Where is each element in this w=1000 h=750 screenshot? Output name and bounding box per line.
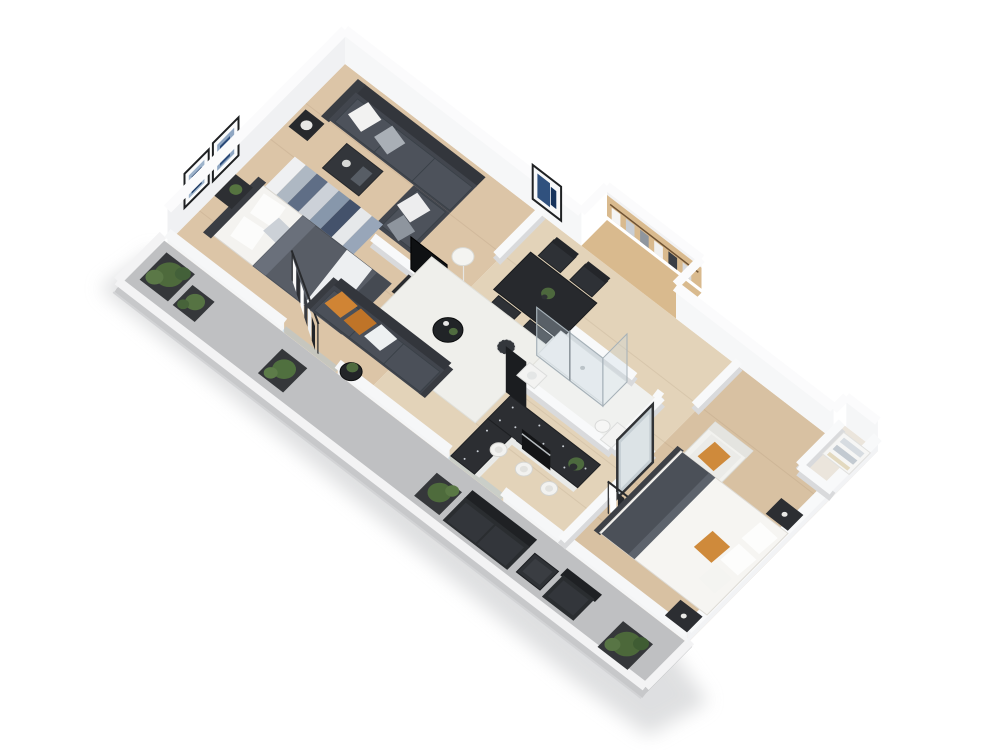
utility-wall-top — [834, 397, 847, 410]
planter-foliage — [264, 367, 278, 378]
table-deco — [443, 321, 449, 326]
bar-stool-seat — [545, 485, 553, 492]
scene-items — [100, 30, 878, 736]
coffee-table-plate — [342, 160, 351, 167]
round-coffee-table — [433, 318, 463, 343]
closet-wall-top — [581, 186, 607, 212]
bar-stool-seat — [520, 466, 528, 473]
nightstand-plant — [229, 184, 242, 195]
counter-pot — [569, 464, 577, 471]
planter-foliage — [145, 270, 163, 285]
clothes-rack-leg — [608, 481, 609, 514]
planter-foliage — [633, 637, 649, 650]
clothes-rack-leg — [317, 323, 318, 354]
table-plant — [449, 328, 458, 335]
sink-basin — [527, 371, 537, 379]
bar-stool-seat — [495, 446, 503, 453]
planter-foliage — [175, 267, 191, 280]
floor-lamp-shade — [452, 248, 474, 266]
planter-foliage — [177, 299, 189, 309]
dining-vase — [542, 295, 548, 300]
planter-foliage — [445, 485, 459, 496]
clothes-rack-leg — [292, 250, 293, 281]
plant-table-plant — [346, 363, 358, 373]
floor-plan-render — [0, 0, 1000, 750]
planter-foliage — [604, 638, 620, 651]
nightstand-lamp — [681, 614, 687, 619]
side-table-tray — [300, 120, 312, 130]
nightstand-lamp — [782, 512, 788, 517]
floor-plan-canvas — [0, 0, 1000, 750]
shower-pole — [569, 330, 571, 381]
toilet-bowl — [595, 420, 610, 432]
